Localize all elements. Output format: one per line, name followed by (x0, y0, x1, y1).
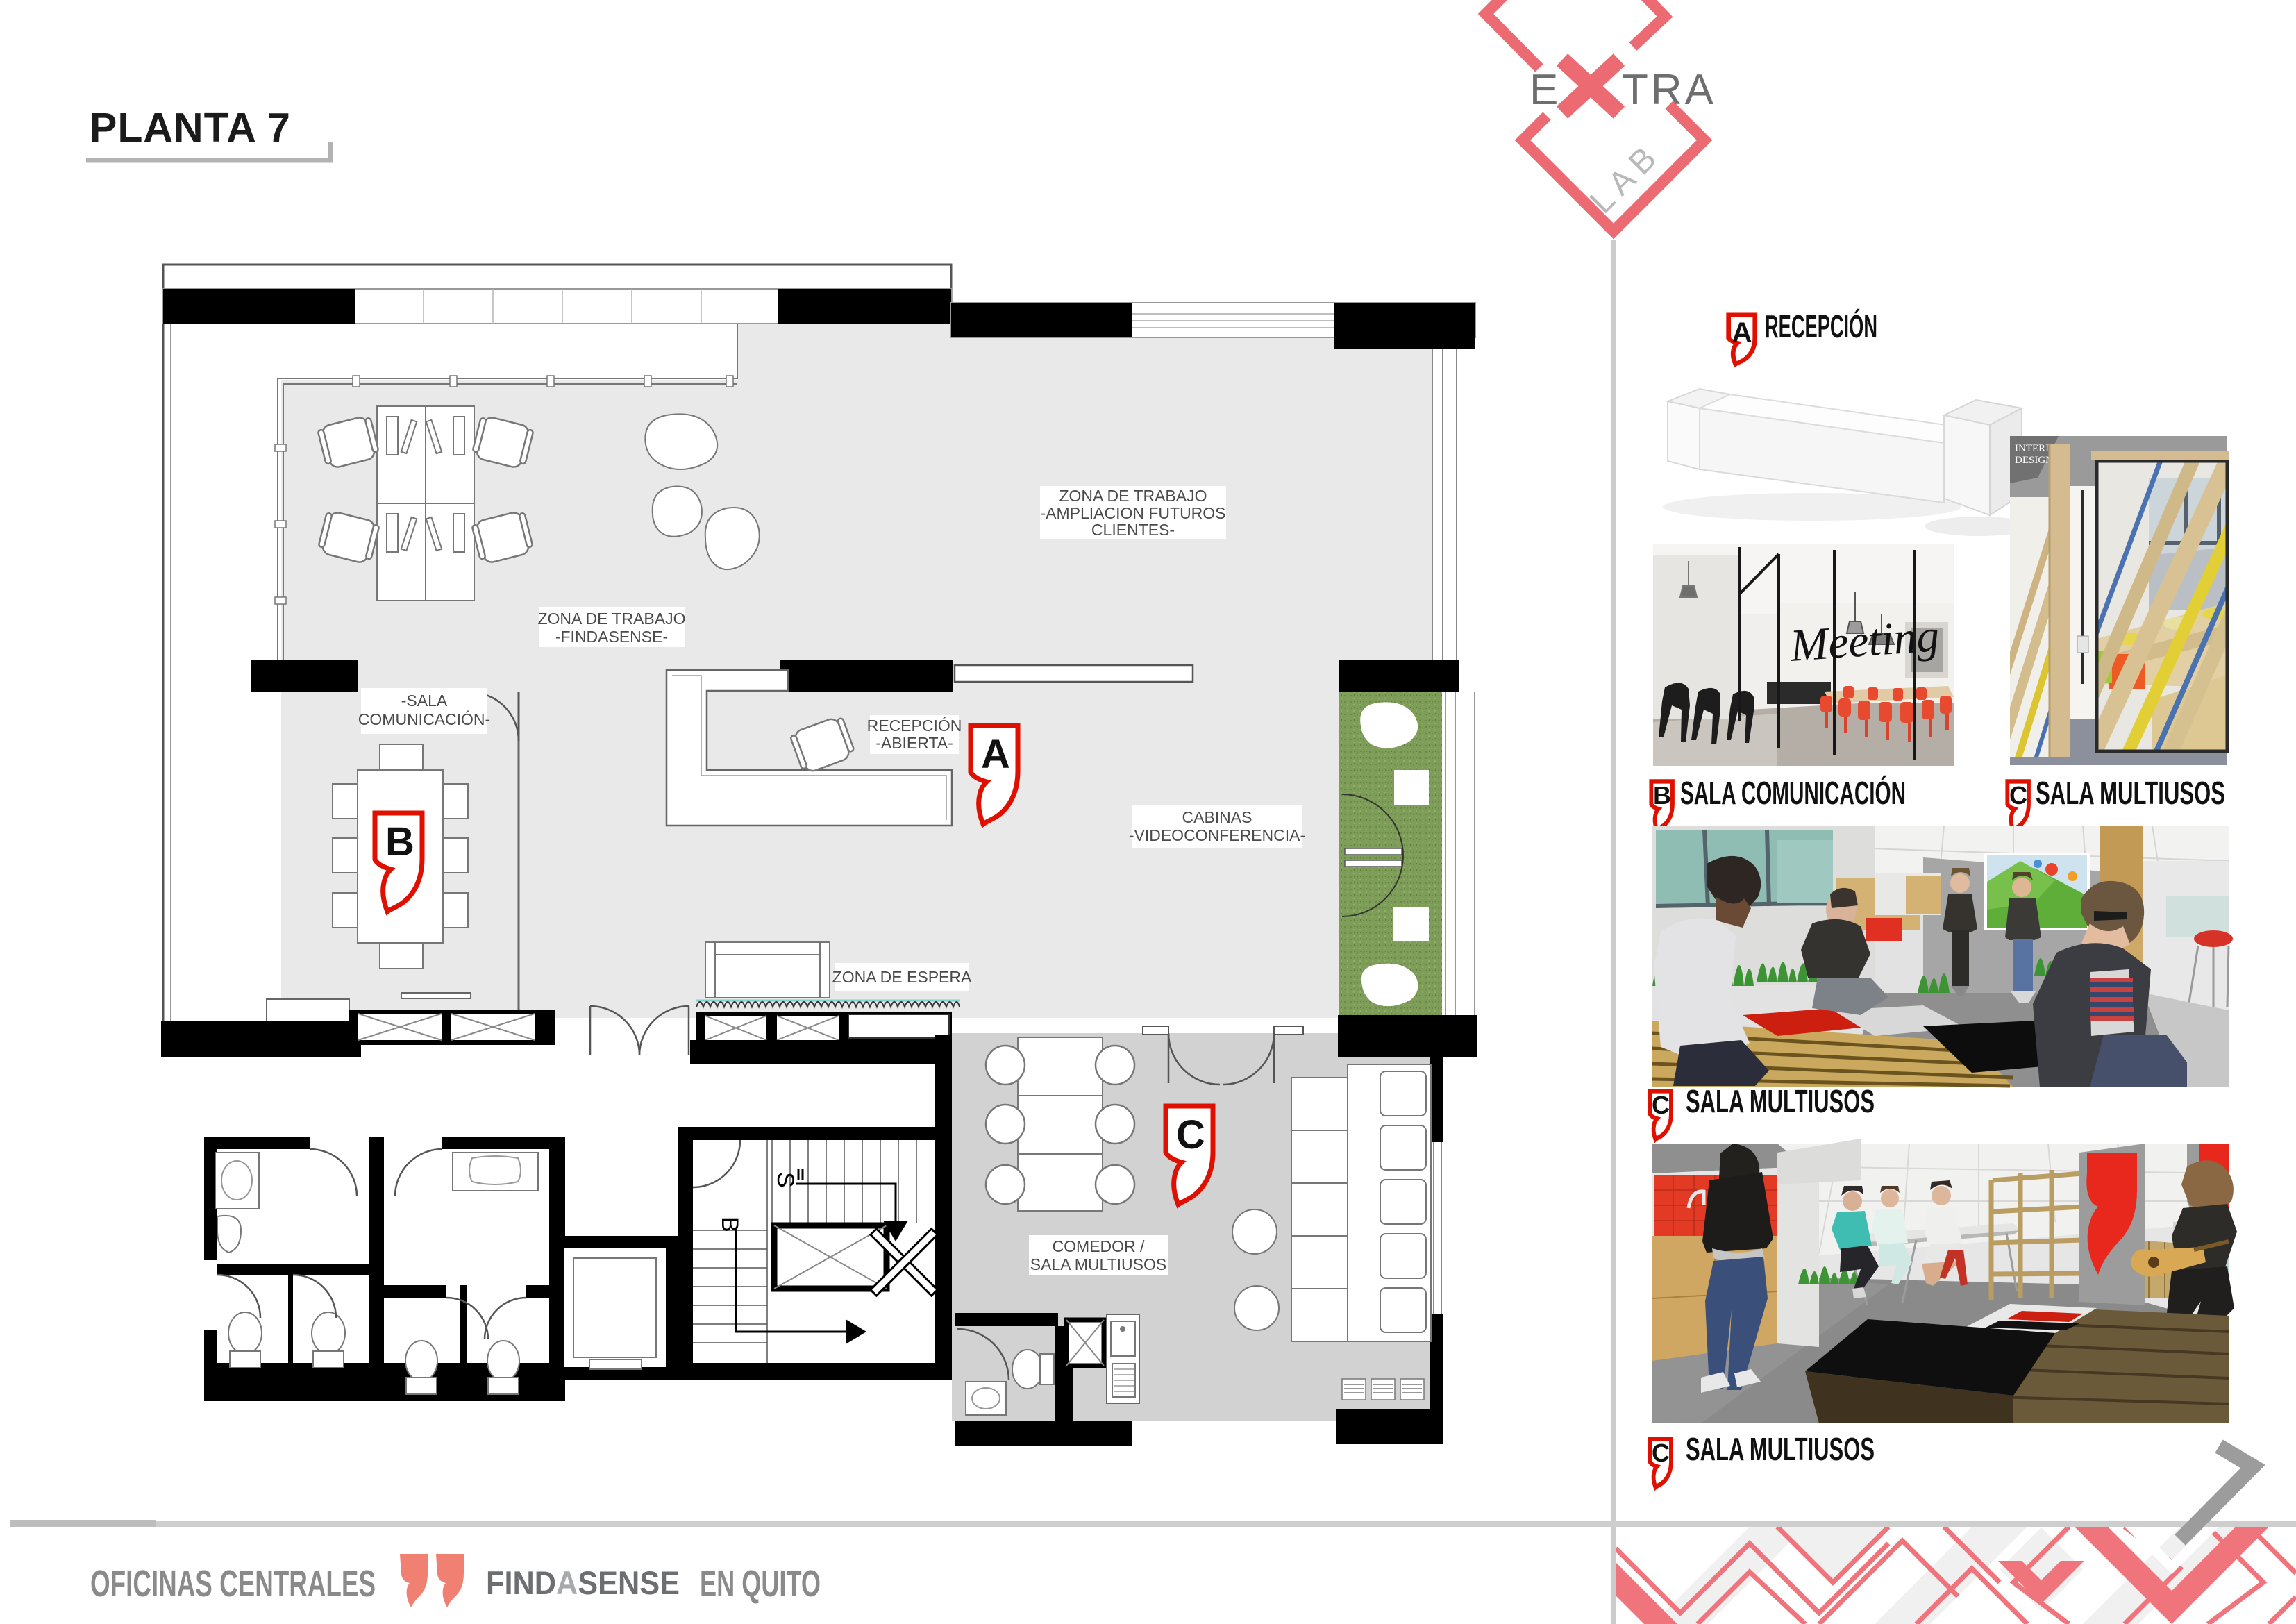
svg-text:ZONA DE TRABAJO: ZONA DE TRABAJO (537, 610, 685, 628)
svg-text:SALA COMUNICACIÓN: SALA COMUNICACIÓN (1680, 775, 1906, 811)
svg-text:SALA MULTIUSOS: SALA MULTIUSOS (1030, 1255, 1166, 1273)
svg-text:B: B (385, 819, 414, 864)
svg-text:B: B (1653, 781, 1671, 810)
svg-text:RECEPCIÓN: RECEPCIÓN (867, 717, 962, 735)
svg-text:C: C (1652, 1439, 1670, 1467)
svg-text:FINDASENSE: FINDASENSE (486, 1564, 680, 1601)
svg-text:-ABIERTA-: -ABIERTA- (875, 734, 953, 752)
svg-text:ZONA DE TRABAJO: ZONA DE TRABAJO (1059, 487, 1207, 505)
svg-text:E: E (1530, 66, 1561, 114)
svg-text:-VIDEOCONFERENCIA-: -VIDEOCONFERENCIA- (1129, 826, 1305, 844)
svg-text:-SALA: -SALA (401, 692, 448, 710)
svg-text:TRA: TRA (1622, 66, 1716, 114)
svg-text:C: C (1652, 1091, 1670, 1119)
svg-text:-FINDASENSE-: -FINDASENSE- (555, 628, 668, 646)
svg-text:EN QUITO: EN QUITO (700, 1563, 821, 1605)
svg-text:DESIGN: DESIGN (2015, 455, 2053, 466)
svg-text:PLANTA 7: PLANTA 7 (90, 105, 291, 151)
svg-text:SALA MULTIUSOS: SALA MULTIUSOS (1686, 1431, 1875, 1467)
svg-text:-AMPLIACION FUTUROS: -AMPLIACION FUTUROS (1040, 504, 1225, 522)
svg-text:S: S (772, 1172, 798, 1188)
svg-text:B: B (717, 1216, 743, 1232)
svg-text:ZONA DE ESPERA: ZONA DE ESPERA (832, 968, 972, 986)
svg-text:OFICINAS CENTRALES: OFICINAS CENTRALES (90, 1563, 376, 1605)
svg-text:C: C (1176, 1112, 1205, 1157)
svg-text:COMEDOR /: COMEDOR / (1053, 1237, 1146, 1255)
svg-text:SALA MULTIUSOS: SALA MULTIUSOS (2036, 775, 2225, 811)
svg-text:SALA MULTIUSOS: SALA MULTIUSOS (1686, 1083, 1875, 1119)
svg-text:CLIENTES-: CLIENTES- (1091, 521, 1175, 539)
svg-text:CABINAS: CABINAS (1182, 808, 1252, 826)
svg-text:C: C (2009, 781, 2027, 810)
svg-text:Meeting: Meeting (1788, 610, 1941, 671)
svg-text:COMUNICACIÓN-: COMUNICACIÓN- (358, 710, 490, 728)
svg-text:RECEPCIÓN: RECEPCIÓN (1765, 308, 1877, 344)
svg-text:A: A (1732, 317, 1752, 348)
svg-text:A: A (981, 732, 1010, 777)
